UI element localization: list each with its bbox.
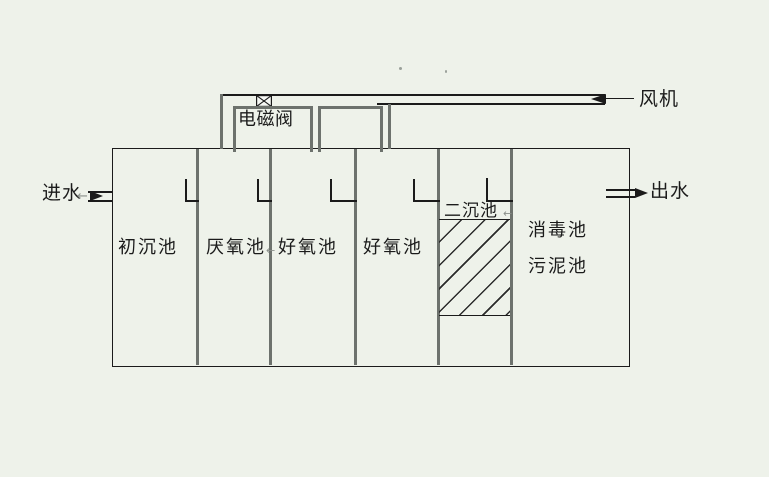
air-drop-pipe-2: [388, 104, 391, 149]
small-arrow-icon: ←: [503, 208, 512, 219]
tank-label-aerobic-1: 好氧池: [278, 238, 338, 258]
outlet-pipe: [606, 196, 635, 198]
tank-label-sludge: 污泥池: [528, 257, 588, 277]
tank-label-aerobic-2: 好氧池: [363, 238, 423, 258]
air-header-pipe-lower: [377, 103, 605, 105]
tank-label-secondary-sedimentation: 二沉池: [444, 202, 498, 221]
blower-arrow-icon: [591, 94, 606, 104]
air-drop-box: [318, 106, 383, 152]
outlet-label: 出水: [650, 182, 690, 202]
sludge-hatch-area: [439, 219, 510, 316]
overflow-weir-5: [486, 178, 513, 202]
solenoid-valve-label: 电磁阀: [238, 110, 294, 130]
inlet-label: 进水: [42, 184, 82, 204]
water-treatment-diagram: 初沉池 厌氧池 ← 好氧池 好氧池 二沉池 ← 消毒池 污泥池 进水 ← 出水 …: [0, 0, 769, 477]
blower-line: [606, 98, 634, 99]
air-drop-pipe-1: [220, 94, 223, 149]
air-header-pipe: [220, 94, 605, 96]
outlet-pipe: [606, 189, 635, 191]
inlet-arrow-icon: [90, 191, 103, 201]
overflow-weir-1: [185, 179, 199, 202]
tank-label-anaerobic: 厌氧池: [206, 238, 266, 258]
speck: [445, 70, 447, 73]
tank-label-primary-sedimentation: 初沉池: [118, 238, 178, 258]
speck: [399, 67, 402, 70]
small-arrow-icon: ←: [77, 190, 88, 203]
outlet-arrow-icon: [635, 188, 648, 198]
small-arrow-icon: ←: [266, 245, 275, 256]
overflow-weir-3: [330, 179, 357, 202]
tank-label-disinfection: 消毒池: [528, 221, 588, 241]
blower-label: 风机: [639, 90, 679, 110]
overflow-weir-2: [257, 179, 272, 202]
overflow-weir-4: [413, 179, 440, 202]
